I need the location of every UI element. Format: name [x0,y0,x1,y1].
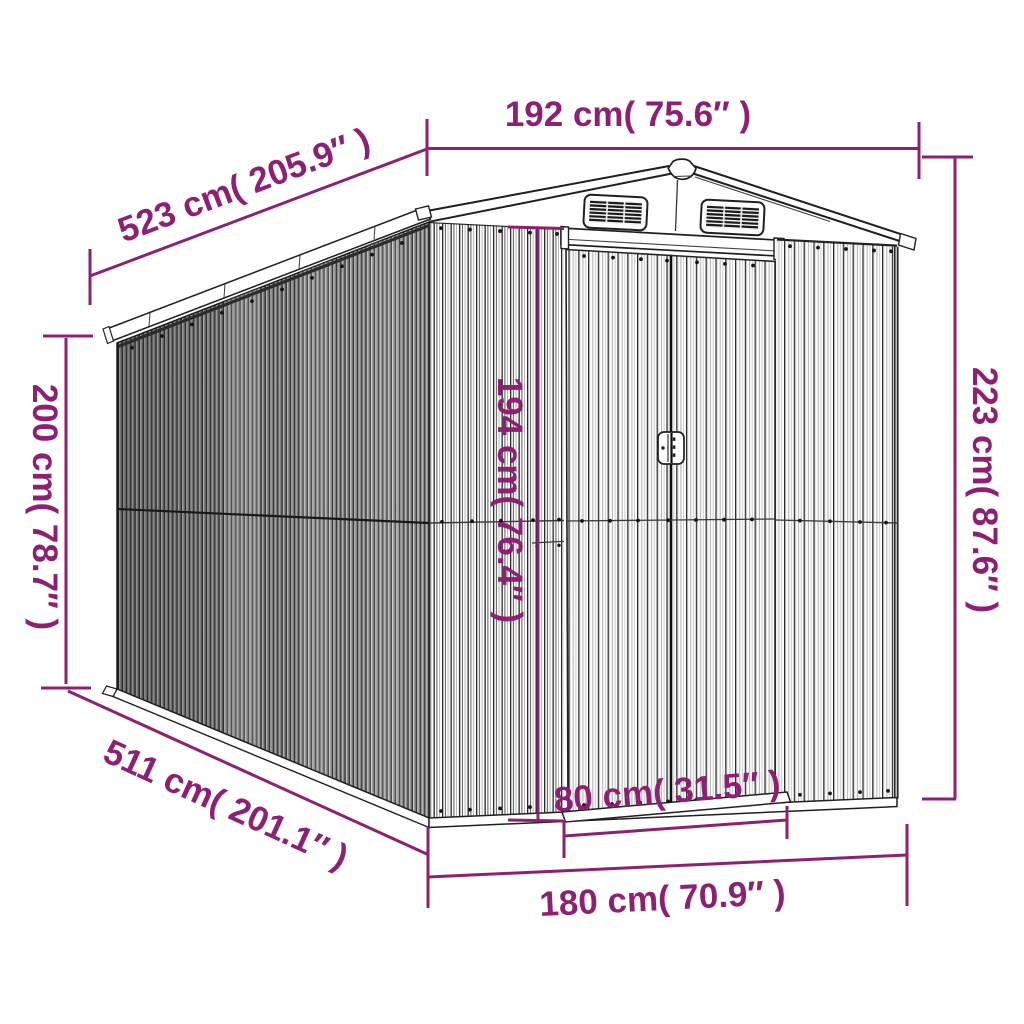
svg-text:194 cm( 76.4″ ): 194 cm( 76.4″ ) [490,377,529,623]
svg-text:200 cm( 78.7″ ): 200 cm( 78.7″ ) [25,384,64,630]
svg-text:223 cm( 87.6″ ): 223 cm( 87.6″ ) [965,367,1004,613]
svg-text:192 cm( 75.6″ ): 192 cm( 75.6″ ) [505,95,751,134]
